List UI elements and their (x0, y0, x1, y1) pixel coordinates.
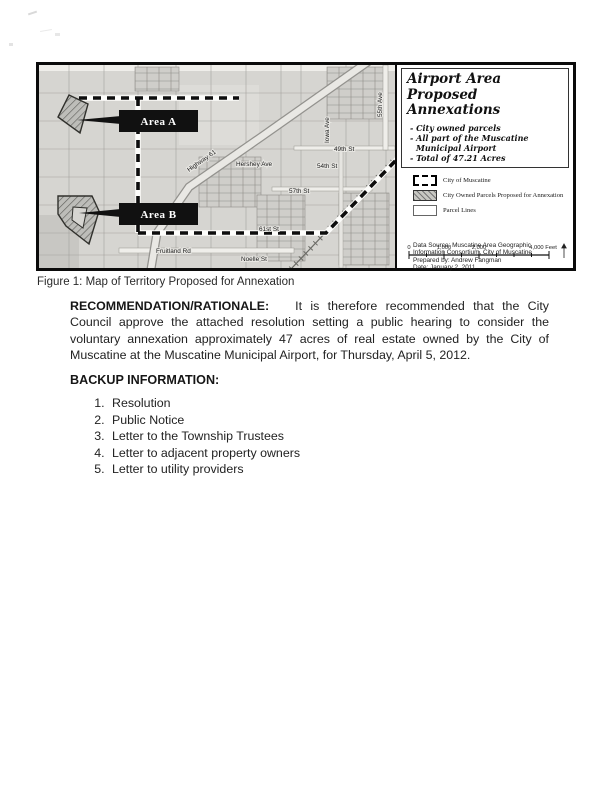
legend-row-annexation: City Owned Parcels Proposed for Annexati… (413, 190, 567, 201)
legend-row-city: City of Muscatine (413, 175, 567, 186)
recommendation-paragraph: RECOMMENDATION/RATIONALE:It is therefore… (70, 298, 549, 364)
map-scale-bar: 0 1,000 2,000 4,000 Feet (405, 243, 571, 265)
legend-label: City of Muscatine (443, 177, 491, 184)
area-a-label: Area A (140, 116, 176, 128)
list-item-utility-providers: Letter to utility providers (108, 462, 300, 476)
map-info-panel: Airport Area Proposed Annexations - City… (395, 65, 573, 268)
scale-label-0: 0 (407, 245, 410, 251)
street-label-fruitland: Fruitland Rd (156, 248, 191, 255)
map-title-bullets: - City owned parcels - All part of the M… (407, 123, 563, 163)
list-item-property-owners: Letter to adjacent property owners (108, 446, 300, 460)
backup-information-heading: BACKUP INFORMATION: (70, 373, 219, 387)
list-item-resolution: Resolution (108, 396, 300, 410)
credit-date: Date: January 2, 2011 (413, 264, 567, 272)
map-canvas: Area A Area B Highway 61 49th St 54th St… (39, 65, 395, 268)
street-label-61st: 61st St (259, 226, 279, 233)
map-legend: City of Muscatine City Owned Parcels Pro… (413, 175, 567, 216)
scale-label-1000: 1,000 (437, 245, 452, 251)
list-item-public-notice: Public Notice (108, 413, 300, 427)
street-label-iowa-ave: Iowa Ave (324, 117, 331, 143)
legend-swatch-annexation-parcels (413, 190, 437, 201)
legend-swatch-city-boundary (413, 175, 437, 186)
street-label-noelle: Noelle St (241, 256, 267, 263)
street-label-57th: 57th St (289, 188, 309, 195)
map-title-line2: Proposed Annexations (407, 88, 563, 119)
north-arrow-icon (562, 244, 566, 258)
legend-swatch-parcel-lines (413, 205, 437, 216)
street-label-54th: 54th St (317, 163, 337, 170)
legend-label: Parcel Lines (443, 207, 476, 214)
backup-information-list: Resolution Public Notice Letter to the T… (70, 396, 300, 479)
scale-label-2000: 2,000 (472, 245, 487, 251)
street-label-55th-ave: 55th Ave (377, 92, 384, 117)
annexation-map: Area A Area B Highway 61 49th St 54th St… (39, 65, 395, 268)
scan-artifact (55, 33, 60, 36)
scanned-document-page: Area A Area B Highway 61 49th St 54th St… (0, 0, 614, 800)
map-title-line1: Airport Area (407, 72, 563, 88)
legend-row-parcel-lines: Parcel Lines (413, 205, 567, 216)
area-b-label: Area B (140, 209, 176, 221)
map-title-box: Airport Area Proposed Annexations - City… (401, 68, 569, 168)
bullet-city-owned: - City owned parcels (407, 123, 563, 133)
bullet-airport: - All part of the Muscatine Municipal Ai… (407, 133, 563, 153)
scale-label-4000feet: 4,000 Feet (529, 245, 557, 251)
map-figure: Area A Area B Highway 61 49th St 54th St… (36, 62, 576, 271)
figure-caption: Figure 1: Map of Territory Proposed for … (37, 276, 294, 288)
legend-label: City Owned Parcels Proposed for Annexati… (443, 192, 563, 199)
bullet-acres: - Total of 47.21 Acres (407, 153, 563, 163)
scan-artifact (40, 29, 52, 32)
recommendation-heading: RECOMMENDATION/RATIONALE: (70, 299, 269, 313)
scan-artifact (9, 43, 13, 46)
street-label-hershey: Hershey Ave (236, 161, 273, 168)
scan-artifact (28, 11, 37, 16)
street-label-49th: 49th St (334, 146, 354, 153)
list-item-township-trustees: Letter to the Township Trustees (108, 429, 300, 443)
